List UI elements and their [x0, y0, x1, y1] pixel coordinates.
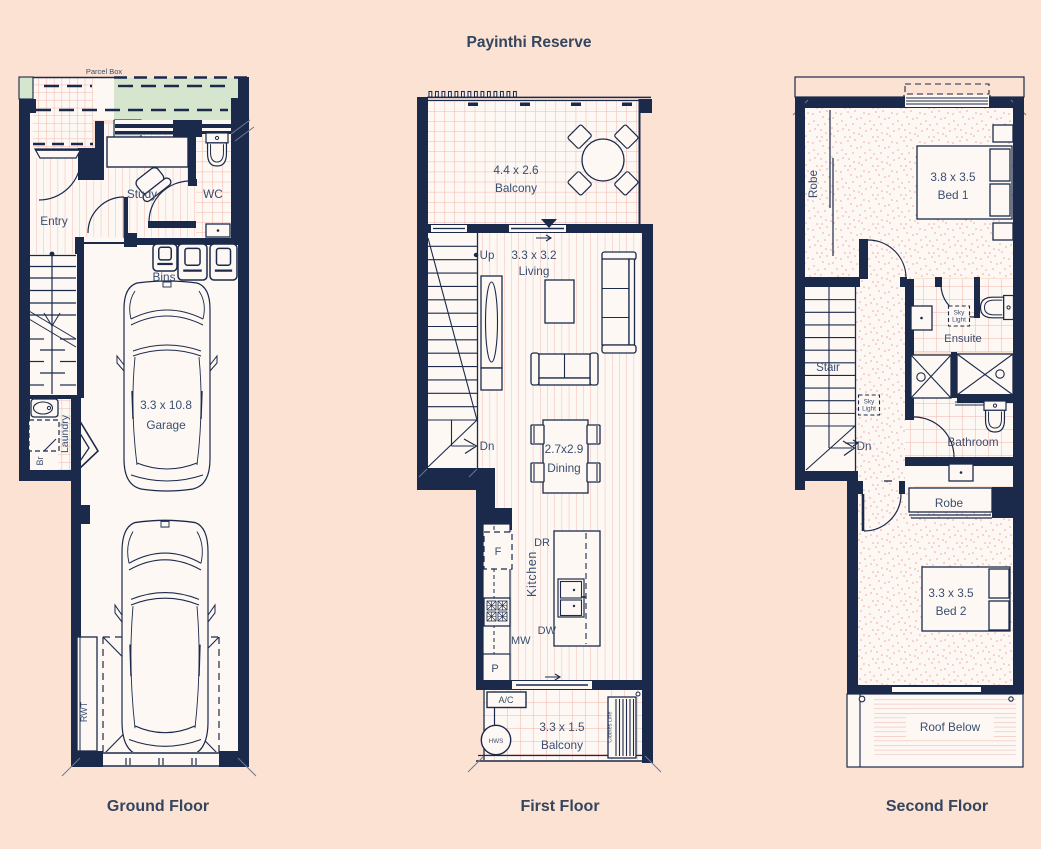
svg-text:DR: DR — [534, 537, 550, 549]
svg-text:4.4 x 2.6: 4.4 x 2.6 — [493, 163, 539, 177]
svg-text:Parcel Box: Parcel Box — [86, 67, 123, 76]
svg-text:Dining: Dining — [547, 461, 580, 475]
svg-text:Kitchen: Kitchen — [525, 551, 539, 597]
svg-text:F: F — [495, 546, 502, 558]
svg-text:WC: WC — [203, 187, 223, 201]
svg-text:3.3 x 3.5: 3.3 x 3.5 — [928, 586, 974, 600]
svg-text:2.7x2.9: 2.7x2.9 — [545, 442, 584, 456]
svg-text:P: P — [491, 663, 498, 675]
svg-text:Clothes Line: Clothes Line — [608, 711, 614, 742]
svg-text:Balcony: Balcony — [495, 181, 537, 195]
svg-text:Ensuite: Ensuite — [944, 333, 982, 345]
svg-text:Robe: Robe — [806, 169, 820, 198]
svg-text:3.3 x 1.5: 3.3 x 1.5 — [539, 720, 585, 734]
svg-text:Ground Floor: Ground Floor — [107, 798, 209, 815]
svg-text:DW: DW — [538, 625, 557, 637]
svg-text:3.3 x 10.8: 3.3 x 10.8 — [140, 398, 192, 412]
svg-text:Br: Br — [35, 456, 45, 465]
svg-text:Light: Light — [952, 317, 966, 324]
svg-text:Light: Light — [862, 406, 876, 413]
svg-text:Dn: Dn — [480, 441, 495, 453]
svg-text:Laundry: Laundry — [59, 414, 71, 453]
svg-text:Bins: Bins — [153, 270, 176, 284]
svg-text:Study: Study — [127, 187, 157, 201]
svg-text:Stair: Stair — [816, 362, 840, 374]
svg-text:First Floor: First Floor — [520, 798, 599, 815]
svg-text:Robe: Robe — [935, 496, 964, 510]
svg-text:Bed 2: Bed 2 — [936, 604, 967, 618]
svg-text:Second Floor: Second Floor — [886, 798, 988, 815]
svg-text:Bathroom: Bathroom — [947, 435, 998, 449]
svg-text:Sky: Sky — [954, 310, 965, 317]
svg-text:3.8 x 3.5: 3.8 x 3.5 — [930, 170, 976, 184]
svg-text:A/C: A/C — [498, 695, 514, 705]
svg-text:Roof Below: Roof Below — [920, 720, 981, 734]
svg-text:Living: Living — [519, 264, 550, 278]
svg-text:Up: Up — [480, 250, 495, 262]
svg-text:Balcony: Balcony — [541, 738, 583, 752]
svg-text:MW: MW — [511, 635, 531, 647]
svg-text:Sky: Sky — [864, 399, 875, 406]
svg-text:Dn: Dn — [857, 441, 872, 453]
svg-text:Garage: Garage — [146, 418, 186, 432]
svg-text:3.3 x 3.2: 3.3 x 3.2 — [511, 248, 556, 262]
svg-text:RWT: RWT — [79, 701, 89, 722]
svg-text:Payinthi Reserve: Payinthi Reserve — [467, 34, 592, 51]
svg-text:HWS: HWS — [489, 738, 503, 745]
svg-text:Entry: Entry — [40, 214, 68, 228]
svg-text:Bed 1: Bed 1 — [938, 188, 969, 202]
